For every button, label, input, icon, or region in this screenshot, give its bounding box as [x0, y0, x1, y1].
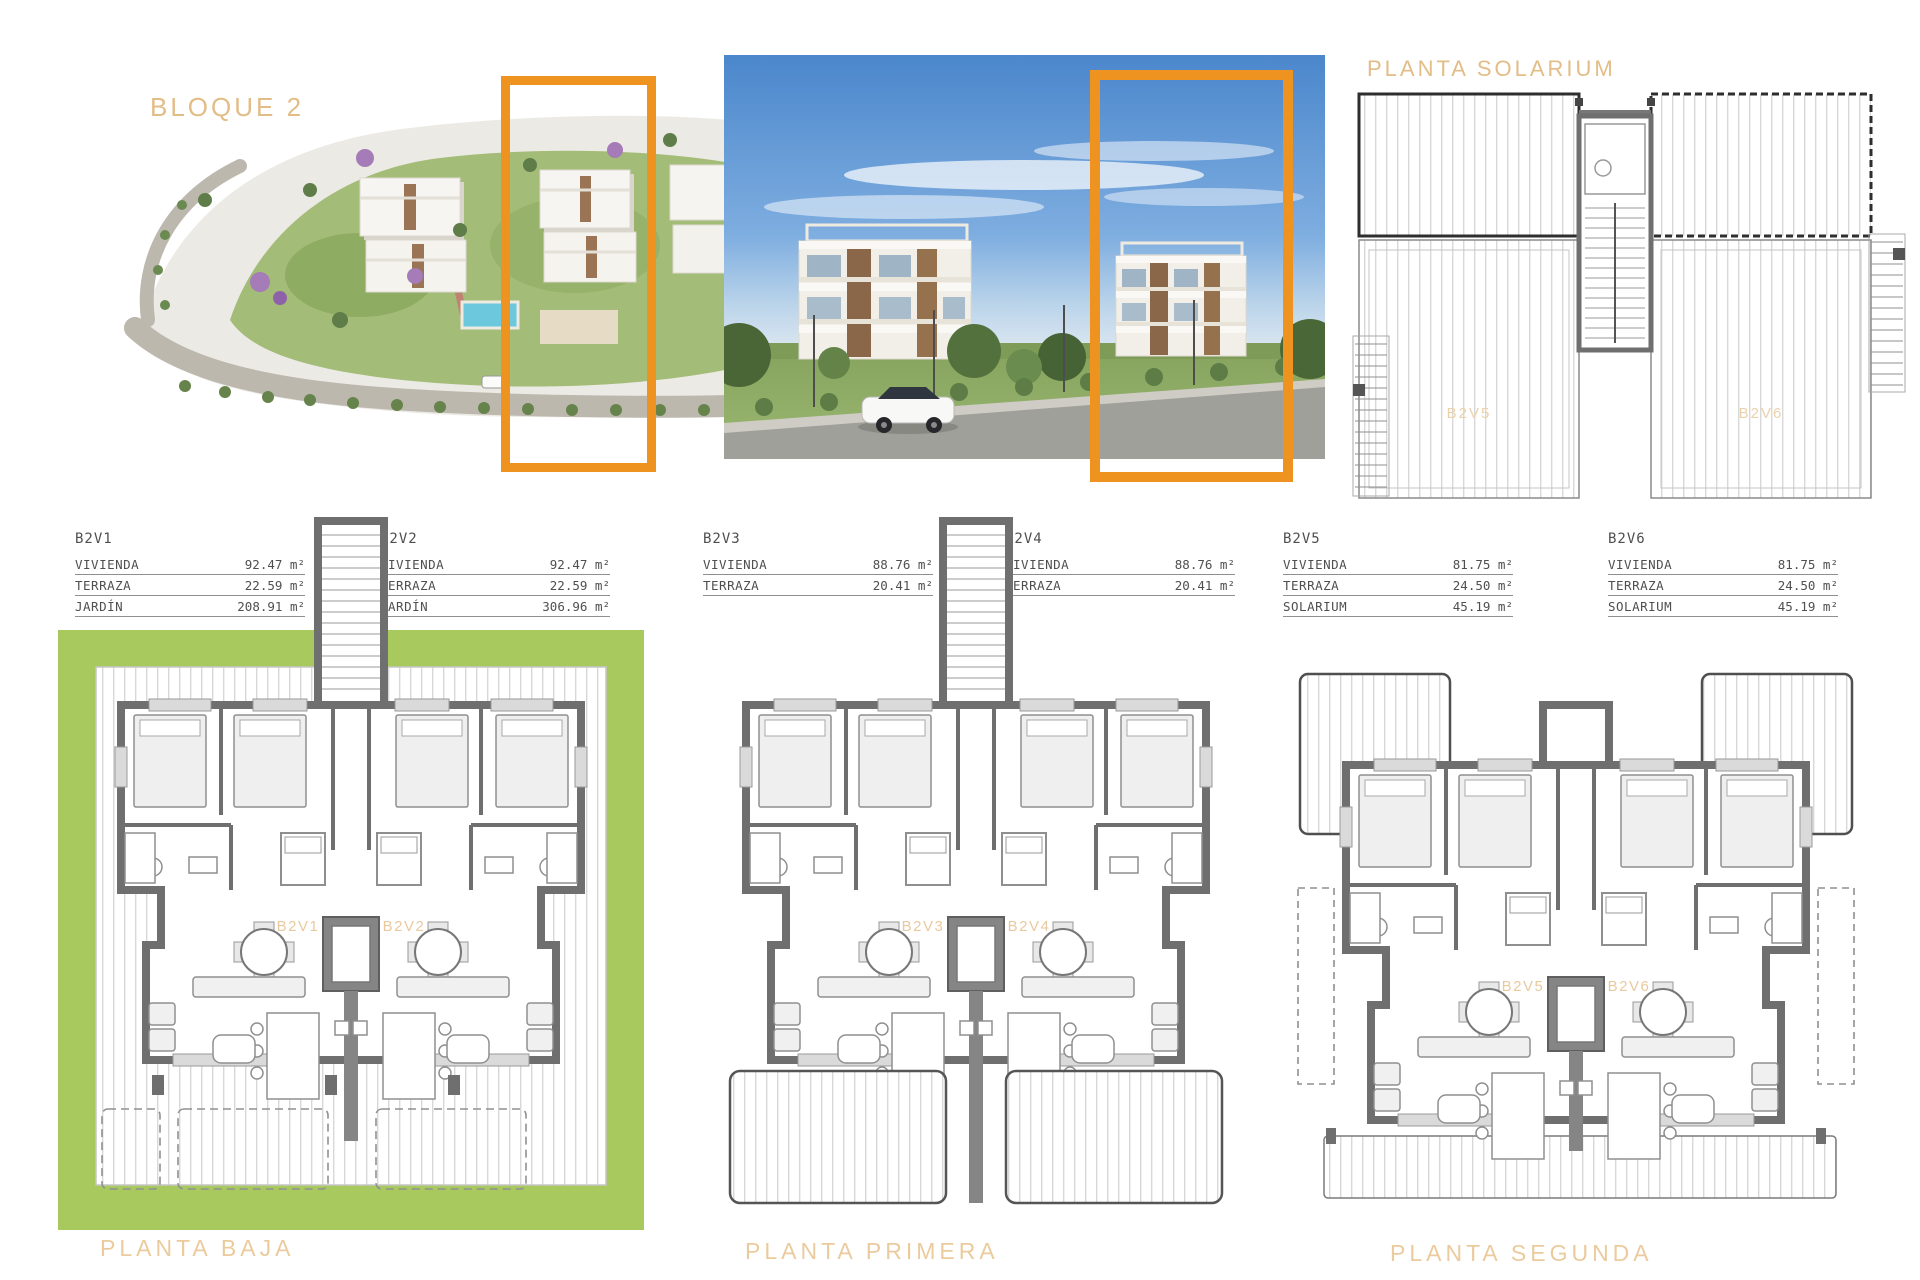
table-row: TERRAZA24.50 m²	[1608, 575, 1838, 596]
apartment-building: B2V1B2V2	[115, 521, 587, 1141]
table-row: SOLARIUM45.19 m²	[1283, 596, 1513, 617]
solarium-title: PLANTA SOLARIUM	[1367, 56, 1616, 82]
planta-baja-title: PLANTA BAJA	[100, 1235, 294, 1262]
planta-segunda-title: PLANTA SEGUNDA	[1390, 1240, 1653, 1267]
unit-label: B2V6	[1608, 978, 1651, 995]
unit-id: B2V6	[1608, 531, 1838, 547]
unit-label: B2V5	[1447, 405, 1492, 422]
floor-plan-baja: B2V1B2V2	[58, 515, 644, 1230]
table-row: VIVIENDA81.75 m²	[1283, 554, 1513, 575]
unit-label: B2V5	[1502, 978, 1545, 995]
highlight-rect-aerial	[501, 76, 656, 472]
unit-label: B2V2	[383, 918, 426, 935]
floor-plan-segunda: B2V5B2V6	[1296, 630, 1856, 1230]
unit-label: B2V6	[1739, 405, 1784, 422]
highlight-rect-photo	[1090, 70, 1293, 482]
unit-label: B2V4	[1008, 918, 1051, 935]
unit-table-b2v6: B2V6 VIVIENDA81.75 m² TERRAZA24.50 m² SO…	[1608, 531, 1838, 617]
brochure-page: BLOQUE 2 PLANTA SOLARIUM	[0, 0, 1920, 1280]
solarium-plan: B2V5B2V6	[1353, 88, 1905, 513]
unit-table-b2v5: B2V5 VIVIENDA81.75 m² TERRAZA24.50 m² SO…	[1283, 531, 1513, 617]
planta-primera-title: PLANTA PRIMERA	[745, 1238, 999, 1265]
table-row: VIVIENDA81.75 m²	[1608, 554, 1838, 575]
table-row: SOLARIUM45.19 m²	[1608, 596, 1838, 617]
unit-id: B2V5	[1283, 531, 1513, 547]
apartment-building: B2V5B2V6	[1340, 705, 1812, 1159]
table-row: TERRAZA24.50 m²	[1283, 575, 1513, 596]
floor-plan-primera: B2V3B2V4	[722, 515, 1230, 1215]
unit-label: B2V1	[277, 918, 320, 935]
unit-label: B2V3	[902, 918, 945, 935]
building-left	[799, 225, 971, 359]
